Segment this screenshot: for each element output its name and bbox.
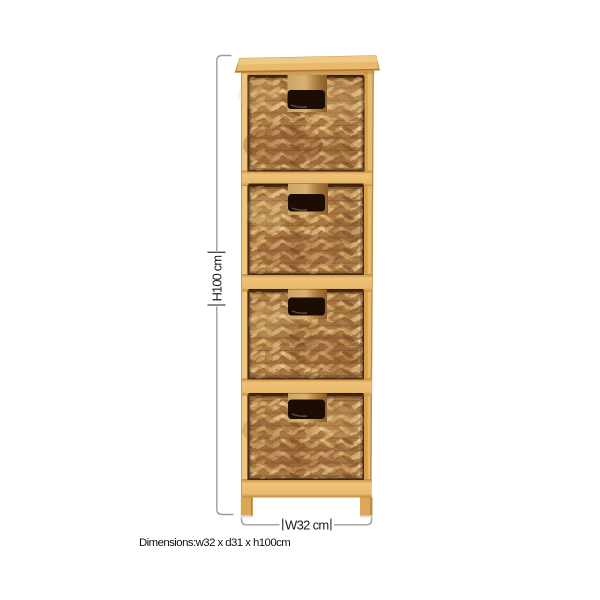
svg-text:W32 cm: W32 cm xyxy=(285,518,328,533)
svg-text:H100 cm: H100 cm xyxy=(209,256,224,302)
svg-text:Dimensions:w32 x d31 x h100cm: Dimensions:w32 x d31 x h100cm xyxy=(139,537,290,549)
